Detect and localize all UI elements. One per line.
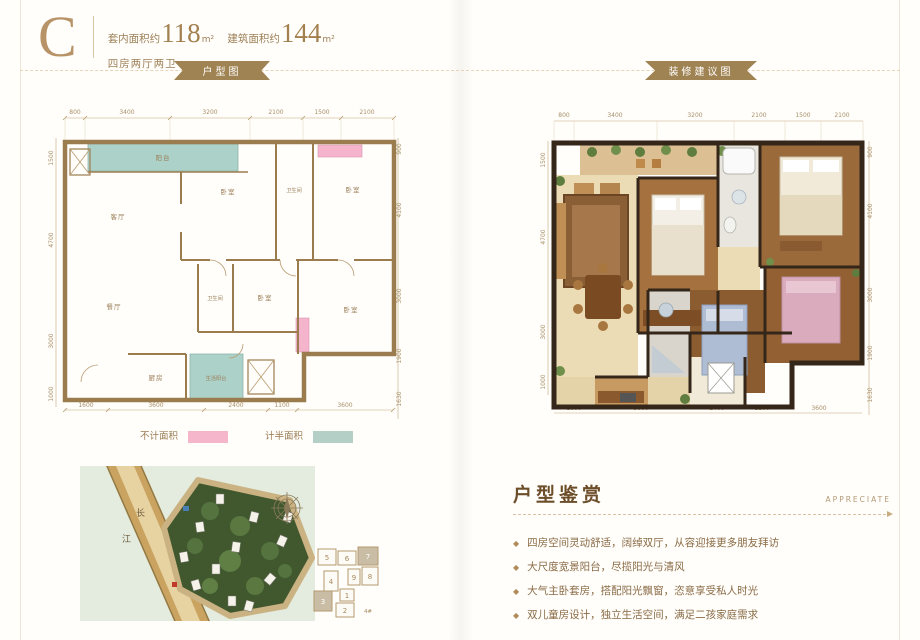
key-b4: 4 bbox=[329, 578, 334, 586]
dec-dim-right-2: 3000 bbox=[867, 287, 874, 302]
room-balcony: 阳台 bbox=[156, 153, 171, 162]
baywindow-not-counted-zone-top bbox=[318, 145, 362, 157]
unit-letter: C bbox=[38, 8, 77, 66]
appreciate-item-text: 大尺度宽景阳台，尽揽阳光与清风 bbox=[527, 559, 685, 574]
dim-top-0: 800 bbox=[69, 109, 81, 116]
tab-decoration[interactable]: 装修建议图 bbox=[645, 61, 757, 80]
dim-right-1: 4100 bbox=[396, 202, 403, 217]
appreciate-item: ◆双儿童房设计，独立生活空间，满足二孩家庭需求 bbox=[513, 607, 891, 622]
key-b5: 5 bbox=[325, 554, 329, 562]
appreciate-subtitle: APPRECIATE bbox=[826, 495, 891, 507]
dec-dim-top-4: 1500 bbox=[795, 112, 810, 119]
room-utility-balcony: 生活阳台 bbox=[206, 374, 227, 382]
ribbon-rule bbox=[20, 70, 900, 71]
key-b8: 8 bbox=[368, 573, 372, 581]
pool-marker bbox=[183, 506, 189, 511]
dim-bottom-2: 2400 bbox=[228, 402, 243, 409]
center-fold bbox=[448, 0, 474, 640]
inner-area-unit: m² bbox=[202, 35, 214, 45]
appreciate-title: 户型鉴赏 bbox=[513, 480, 605, 507]
key-b7: 7 bbox=[366, 553, 370, 561]
key-b9: 9 bbox=[352, 574, 356, 582]
appreciate-item-text: 双儿童房设计，独立生活空间，满足二孩家庭需求 bbox=[527, 607, 758, 622]
key-b6: 6 bbox=[345, 555, 350, 563]
dec-dim-right-3: 1900 bbox=[867, 345, 874, 360]
dim-bottom-0: 1600 bbox=[78, 402, 93, 409]
appreciate-rule bbox=[513, 514, 891, 515]
inner-area-label: 套内面积约 bbox=[108, 33, 161, 45]
decoration-plan: 800 3400 3200 2100 1500 2100 1600 3600 2… bbox=[540, 95, 875, 425]
rule-arrow-icon bbox=[887, 511, 893, 517]
appreciate-item-text: 大气主卧套房，搭配阳光飘窗，恣意享受私人时光 bbox=[527, 583, 758, 598]
legend-half-counted: 计半面积 bbox=[265, 431, 353, 442]
site-map: 长 江 bbox=[80, 466, 315, 621]
dim-top-5: 2100 bbox=[359, 109, 374, 116]
dec-dim-bottom-4: 3600 bbox=[811, 405, 826, 412]
floorplan-diagram: 800 3400 3200 2100 1500 2100 1600 3600 2… bbox=[48, 92, 403, 427]
site-marker bbox=[172, 582, 177, 587]
dim-left-0: 1500 bbox=[48, 150, 55, 165]
dec-dim-left-1: 4700 bbox=[540, 229, 547, 244]
tab-floorplan-label: 户型图 bbox=[203, 63, 242, 78]
room-kitchen: 厨房 bbox=[149, 373, 164, 382]
area-line: 套内面积约118m² 建筑面积约144m² bbox=[108, 18, 335, 49]
legend-pink-swatch bbox=[188, 431, 228, 443]
diamond-bullet-icon: ◆ bbox=[513, 587, 519, 596]
dim-top-4: 1500 bbox=[314, 109, 329, 116]
build-area-label: 建筑面积约 bbox=[227, 33, 280, 45]
right-margin-line bbox=[899, 0, 900, 640]
tab-decoration-label: 装修建议图 bbox=[669, 63, 734, 78]
build-area-unit: m² bbox=[322, 35, 334, 45]
inner-area-value: 118 bbox=[161, 18, 201, 48]
room-dining: 餐厅 bbox=[107, 302, 122, 311]
dim-bottom-4: 3600 bbox=[337, 402, 352, 409]
legend-half-counted-label: 计半面积 bbox=[265, 431, 303, 442]
dec-dim-left-2: 3000 bbox=[540, 324, 547, 339]
dim-top-1: 3400 bbox=[119, 109, 134, 116]
room-bath-b: 卫生间 bbox=[207, 294, 223, 302]
dim-right-3: 1900 bbox=[396, 348, 403, 363]
dim-top-2: 3200 bbox=[202, 109, 217, 116]
legend-not-counted-label: 不计面积 bbox=[140, 431, 178, 442]
dec-dim-top-3: 2100 bbox=[751, 112, 766, 119]
legend-not-counted: 不计面积 bbox=[140, 431, 231, 442]
tab-floorplan[interactable]: 户型图 bbox=[174, 61, 270, 80]
room-bedroom-a: 卧室 bbox=[221, 187, 236, 196]
dim-bottom-3: 1100 bbox=[274, 402, 289, 409]
room-living: 客厅 bbox=[111, 212, 126, 221]
dim-right-2: 3000 bbox=[396, 288, 403, 303]
dim-bottom-1: 3600 bbox=[148, 402, 163, 409]
building-key-plan: 5 6 7 4 9 8 1 3 2 4# bbox=[312, 543, 394, 633]
dec-dim-right-0: 900 bbox=[867, 146, 874, 158]
diamond-bullet-icon: ◆ bbox=[513, 563, 519, 572]
appreciate-header: 户型鉴赏 APPRECIATE bbox=[513, 480, 891, 507]
dim-right-4: 1630 bbox=[396, 391, 403, 406]
appreciate-list: ◆四房空间灵动舒适，阔绰双厅，从容迎接更多朋友拜访 ◆大尺度宽景阳台，尽揽阳光与… bbox=[513, 535, 891, 622]
room-bath-a: 卫生间 bbox=[286, 186, 302, 194]
diamond-bullet-icon: ◆ bbox=[513, 611, 519, 620]
legend-teal-swatch bbox=[313, 431, 353, 443]
dim-left-2: 3000 bbox=[48, 333, 55, 348]
diamond-bullet-icon: ◆ bbox=[513, 539, 519, 548]
dec-dim-top-5: 2100 bbox=[834, 112, 849, 119]
appreciate-section: 户型鉴赏 APPRECIATE ◆四房空间灵动舒适，阔绰双厅，从容迎接更多朋友拜… bbox=[513, 480, 891, 631]
area-legend: 不计面积 计半面积 bbox=[140, 428, 387, 443]
dim-left-1: 4700 bbox=[48, 232, 55, 247]
dec-dim-top-0: 800 bbox=[558, 112, 570, 119]
river-label-char2: 江 bbox=[122, 534, 131, 545]
dim-left-3: 1000 bbox=[48, 386, 55, 401]
key-b3: 3 bbox=[321, 598, 325, 606]
dec-dim-left-3: 1000 bbox=[540, 374, 547, 389]
appreciate-item: ◆大气主卧套房，搭配阳光飘窗，恣意享受私人时光 bbox=[513, 583, 891, 598]
dec-dim-left-0: 1500 bbox=[540, 152, 547, 167]
header-divider bbox=[93, 16, 94, 58]
room-bedroom-c: 卧室 bbox=[258, 293, 273, 302]
build-area-value: 144 bbox=[281, 18, 322, 48]
dec-dim-right-1: 4100 bbox=[867, 203, 874, 218]
key-b1: 1 bbox=[345, 592, 349, 600]
key-plan-label: 4# bbox=[364, 609, 372, 615]
dim-right-0: 900 bbox=[396, 143, 403, 155]
appreciate-item: ◆四房空间灵动舒适，阔绰双厅，从容迎接更多朋友拜访 bbox=[513, 535, 891, 550]
room-bedroom-d: 卧室 bbox=[344, 305, 359, 314]
appreciate-item-text: 四房空间灵动舒适，阔绰双厅，从容迎接更多朋友拜访 bbox=[527, 535, 779, 550]
river-label-char1: 长 bbox=[136, 507, 145, 519]
dec-dim-top-2: 3200 bbox=[687, 112, 702, 119]
dim-top-3: 2100 bbox=[268, 109, 283, 116]
dec-dim-right-4: 1630 bbox=[867, 387, 874, 402]
dec-dim-top-1: 3400 bbox=[607, 112, 622, 119]
key-b2: 2 bbox=[343, 607, 347, 615]
appreciate-item: ◆大尺度宽景阳台，尽揽阳光与清风 bbox=[513, 559, 891, 574]
room-bedroom-b: 卧室 bbox=[346, 185, 361, 194]
left-margin-line bbox=[20, 0, 21, 640]
